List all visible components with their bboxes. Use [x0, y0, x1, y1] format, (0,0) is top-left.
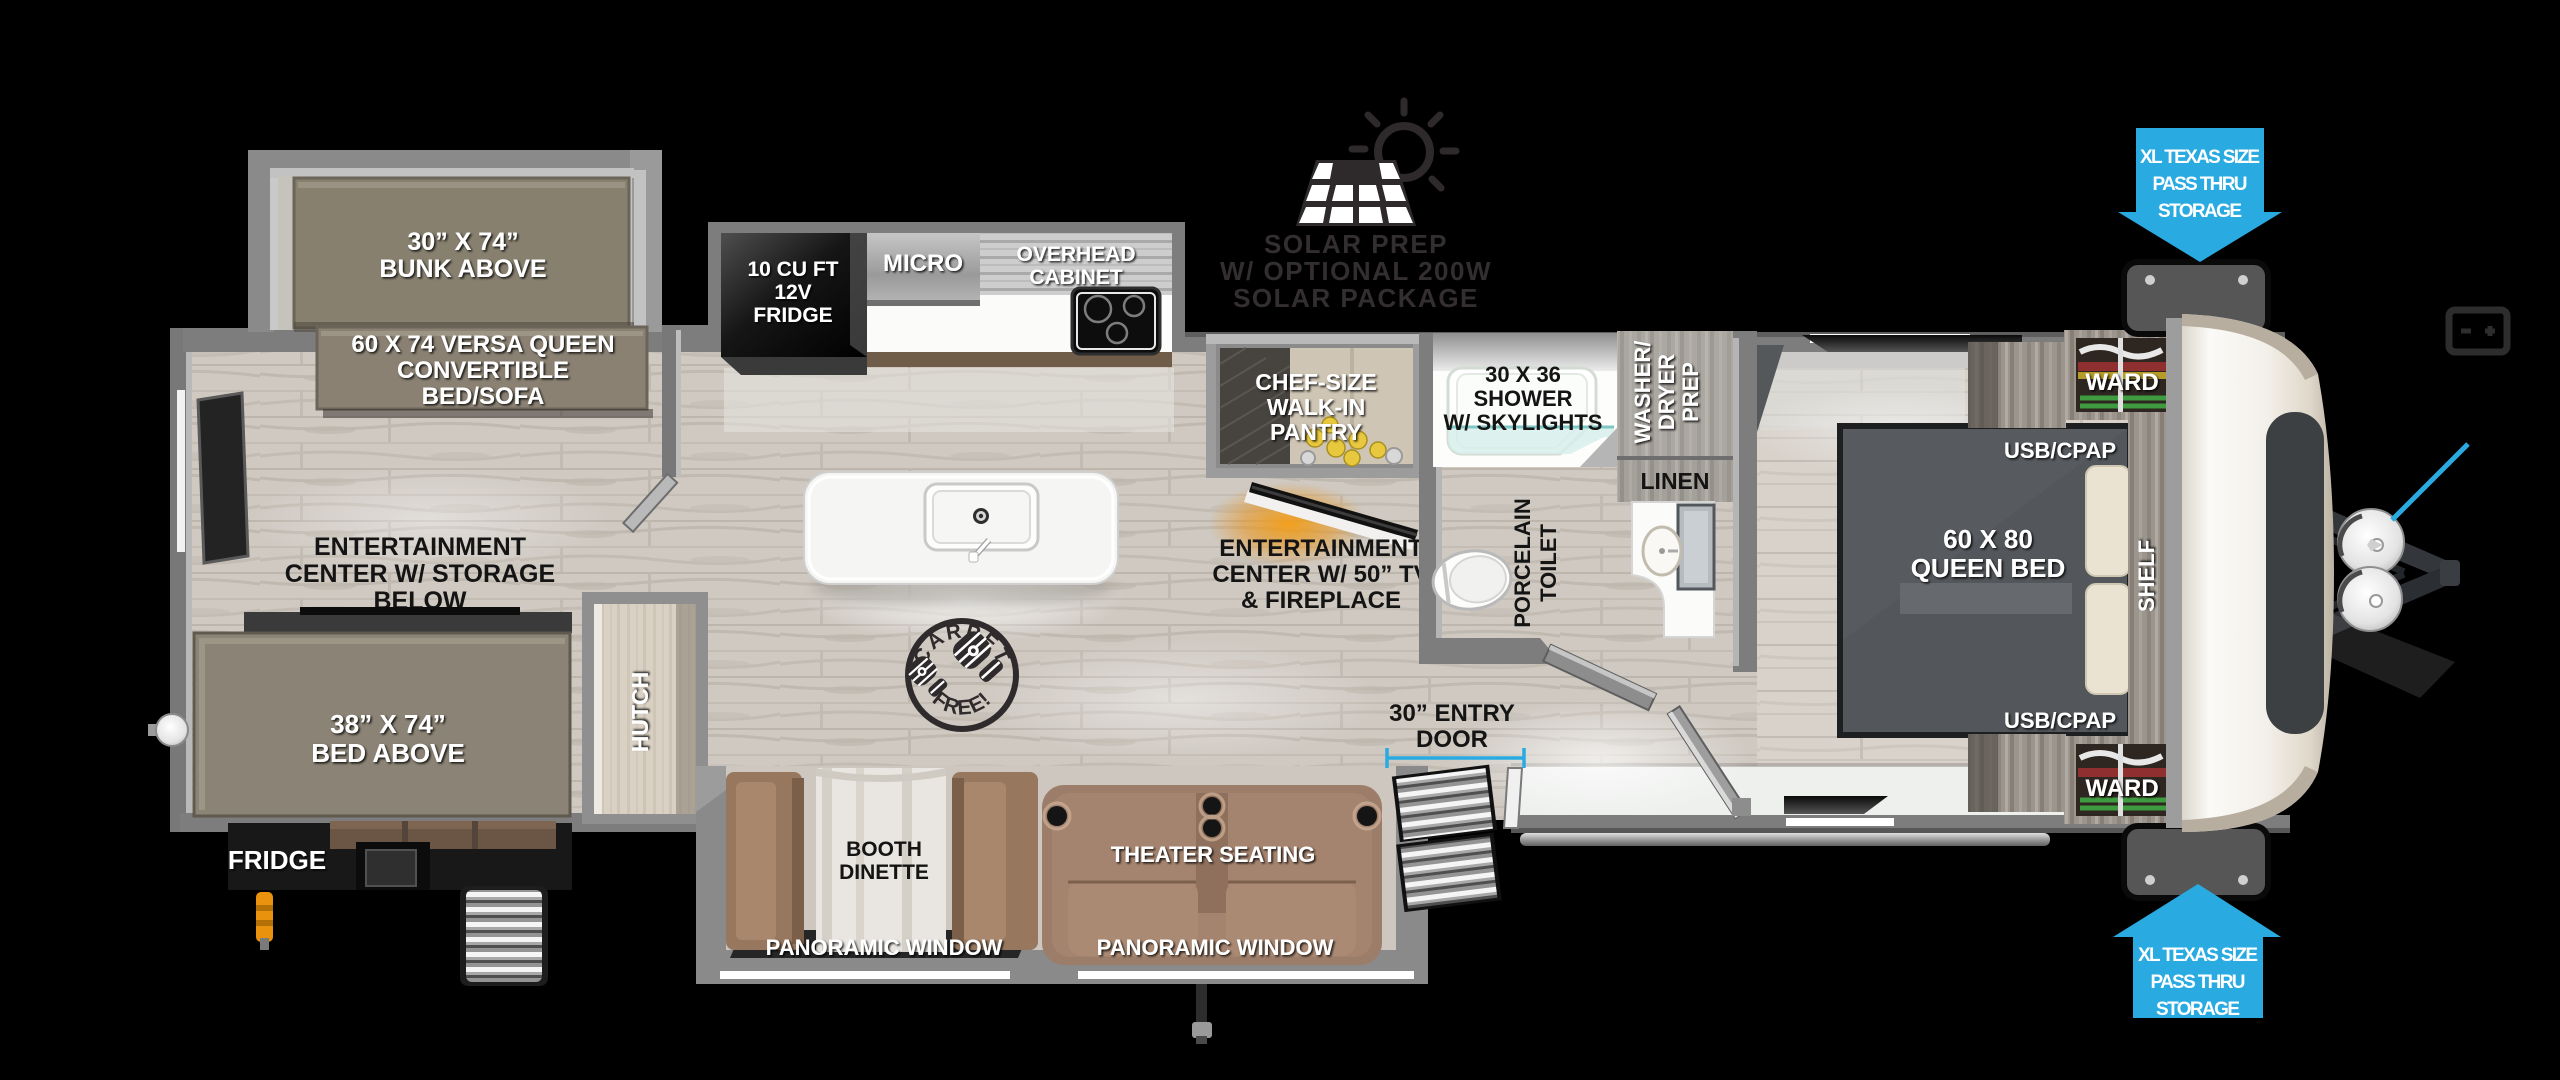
svg-text:QUEEN BED: QUEEN BED [1911, 553, 2066, 583]
svg-text:PANTRY: PANTRY [1270, 419, 1362, 445]
svg-text:12V: 12V [774, 281, 811, 304]
svg-text:XL TEXAS SIZE: XL TEXAS SIZE [2140, 147, 2260, 168]
svg-text:BOOTH: BOOTH [846, 838, 922, 861]
svg-text:PASS THRU: PASS THRU [2151, 972, 2246, 993]
svg-text:SOLAR PACKAGE: SOLAR PACKAGE [1233, 283, 1479, 313]
svg-text:30 X 36: 30 X 36 [1485, 362, 1561, 387]
svg-text:STORAGE: STORAGE [2158, 201, 2242, 222]
svg-text:PANORAMIC WINDOW: PANORAMIC WINDOW [1097, 935, 1334, 960]
svg-text:W/ OPTIONAL 200W: W/ OPTIONAL 200W [1220, 256, 1492, 286]
svg-text:PASS THRU: PASS THRU [2153, 174, 2248, 195]
svg-text:ENTERTAINMENT: ENTERTAINMENT [314, 533, 526, 561]
svg-text:TOILET: TOILET [1536, 524, 1561, 602]
svg-text:38” X 74”: 38” X 74” [330, 709, 446, 739]
svg-text:WARD: WARD [2085, 775, 2158, 802]
svg-text:W/ SKYLIGHTS: W/ SKYLIGHTS [1444, 410, 1603, 435]
svg-text:BED ABOVE: BED ABOVE [311, 738, 465, 768]
svg-text:USB/CPAP: USB/CPAP [2004, 438, 2116, 463]
svg-text:PANORAMIC WINDOW: PANORAMIC WINDOW [766, 935, 1003, 960]
svg-text:ENTERTAINMENT: ENTERTAINMENT [1219, 535, 1423, 562]
svg-text:FRIDGE: FRIDGE [228, 845, 326, 875]
svg-text:MICRO: MICRO [883, 250, 963, 277]
svg-text:OVERHEAD: OVERHEAD [1016, 243, 1135, 266]
svg-text:60 X 80: 60 X 80 [1943, 524, 2033, 554]
svg-text:SHELF: SHELF [2134, 540, 2159, 612]
svg-text:& FIREPLACE: & FIREPLACE [1241, 587, 1401, 614]
svg-text:30” X 74”: 30” X 74” [407, 228, 518, 256]
svg-text:FRIDGE: FRIDGE [753, 304, 832, 327]
svg-text:CENTER W/ STORAGE: CENTER W/ STORAGE [285, 560, 555, 588]
svg-text:60 X 74 VERSA QUEEN: 60 X 74 VERSA QUEEN [351, 331, 614, 358]
svg-text:PREP: PREP [1678, 362, 1703, 422]
svg-text:DRYER: DRYER [1654, 354, 1679, 430]
svg-text:BED/SOFA: BED/SOFA [422, 383, 545, 410]
svg-text:THEATER SEATING: THEATER SEATING [1111, 842, 1316, 867]
svg-text:DOOR: DOOR [1416, 726, 1488, 753]
svg-text:CENTER W/ 50” TV: CENTER W/ 50” TV [1212, 561, 1429, 588]
svg-text:CONVERTIBLE: CONVERTIBLE [397, 357, 569, 384]
svg-text:CABINET: CABINET [1029, 266, 1123, 289]
svg-text:LINEN: LINEN [1641, 468, 1710, 494]
svg-text:XL TEXAS SIZE: XL TEXAS SIZE [2138, 945, 2258, 966]
svg-text:CHEF-SIZE: CHEF-SIZE [1255, 369, 1376, 395]
svg-text:WALK-IN: WALK-IN [1267, 394, 1365, 420]
svg-text:WARD: WARD [2085, 369, 2158, 396]
svg-text:SHOWER: SHOWER [1474, 386, 1573, 411]
svg-text:HUTCH: HUTCH [627, 672, 653, 753]
svg-text:USB/CPAP: USB/CPAP [2004, 708, 2116, 733]
svg-text:BUNK ABOVE: BUNK ABOVE [379, 255, 546, 283]
svg-text:SOLAR PREP: SOLAR PREP [1264, 229, 1448, 259]
svg-text:30” ENTRY: 30” ENTRY [1389, 700, 1515, 727]
svg-text:DINETTE: DINETTE [839, 861, 929, 884]
svg-text:WASHER/: WASHER/ [1630, 341, 1655, 444]
svg-text:PORCELAIN: PORCELAIN [1510, 498, 1535, 628]
svg-text:10 CU FT: 10 CU FT [747, 258, 838, 281]
svg-text:STORAGE: STORAGE [2156, 999, 2240, 1020]
